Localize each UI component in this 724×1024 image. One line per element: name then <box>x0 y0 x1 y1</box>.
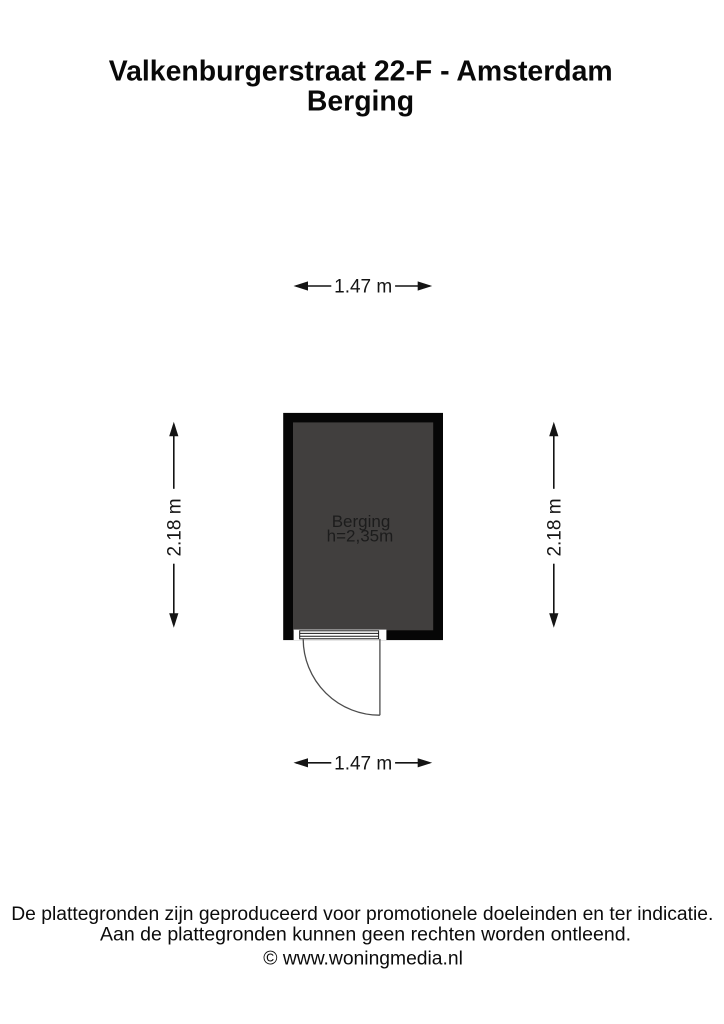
svg-text:Aan de plattegronden kunnen ge: Aan de plattegronden kunnen geen rechten… <box>100 923 631 945</box>
svg-text:1.47 m: 1.47 m <box>334 753 392 774</box>
svg-text:© www.woningmedia.nl: © www.woningmedia.nl <box>263 948 463 969</box>
svg-text:1.47 m: 1.47 m <box>334 277 392 298</box>
svg-text:2.18 m: 2.18 m <box>545 498 566 556</box>
svg-text:h=2,35m: h=2,35m <box>327 526 394 545</box>
svg-text:2.18 m: 2.18 m <box>165 498 186 556</box>
svg-text:Valkenburgerstraat 22-F - Amst: Valkenburgerstraat 22-F - Amsterdam <box>109 55 613 87</box>
svg-text:Berging: Berging <box>307 86 414 118</box>
svg-text:De plattegronden zijn geproduc: De plattegronden zijn geproduceerd voor … <box>11 904 713 925</box>
